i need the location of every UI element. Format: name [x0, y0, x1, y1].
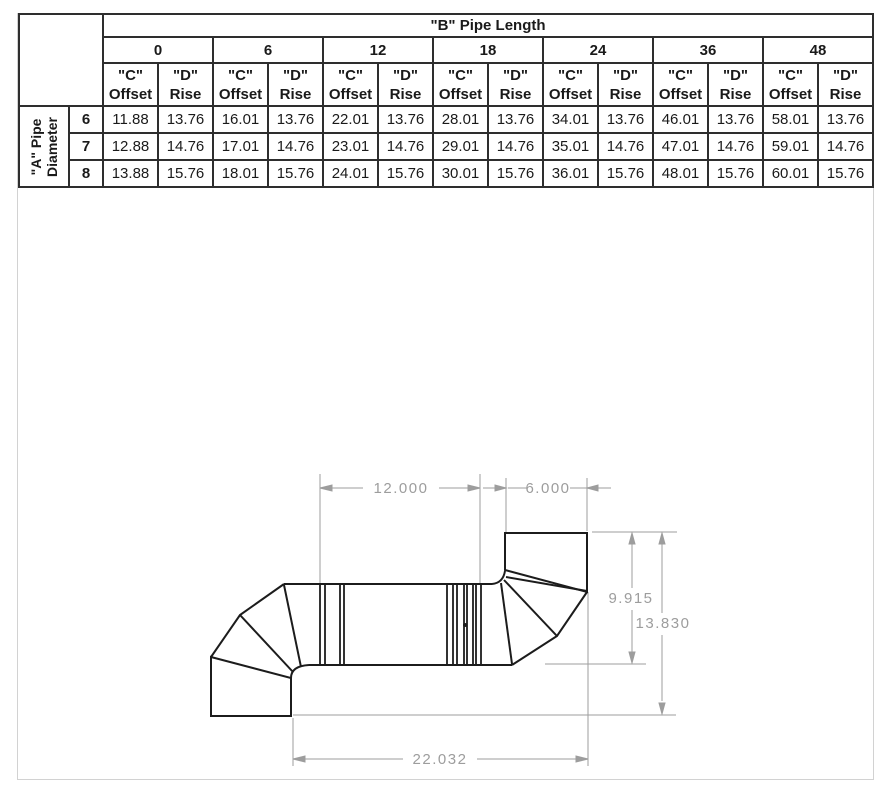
c-header-line1: "C"	[324, 66, 377, 85]
c-offset-value: 22.01	[323, 106, 378, 133]
d-rise-header: "D"Rise	[818, 63, 873, 106]
left-elbow-inlet-collar	[211, 657, 291, 716]
right-elbow	[492, 533, 587, 665]
c-offset-value: 34.01	[543, 106, 598, 133]
c-offset-value: 58.01	[763, 106, 818, 133]
c-offset-value: 46.01	[653, 106, 708, 133]
d-rise-value: 14.76	[378, 133, 433, 160]
d-rise-header: "D"Rise	[268, 63, 323, 106]
c-header-line2: Offset	[214, 85, 267, 104]
table-row: 813.8815.7618.0115.7624.0115.7630.0115.7…	[19, 160, 873, 187]
c-header-line1: "C"	[434, 66, 487, 85]
d-rise-value: 15.76	[488, 160, 543, 187]
a-pipe-diameter-label-cell: "A" Pipe Diameter	[19, 106, 69, 187]
d-rise-value: 13.76	[268, 106, 323, 133]
d-rise-value: 13.76	[158, 106, 213, 133]
dim-text-6000: 6.000	[525, 480, 570, 497]
c-offset-value: 59.01	[763, 133, 818, 160]
c-offset-value: 48.01	[653, 160, 708, 187]
c-offset-value: 36.01	[543, 160, 598, 187]
c-offset-value: 35.01	[543, 133, 598, 160]
c-offset-header: "C"Offset	[323, 63, 378, 106]
d-rise-value: 14.76	[268, 133, 323, 160]
pipe-length-header: 48	[763, 37, 873, 63]
dim-text-13830: 13.830	[636, 615, 691, 632]
d-rise-value: 13.76	[378, 106, 433, 133]
d-rise-value: 15.76	[158, 160, 213, 187]
c-header-line1: "C"	[104, 66, 157, 85]
c-header-line1: "C"	[544, 66, 597, 85]
d-rise-value: 15.76	[268, 160, 323, 187]
d-header-line2: Rise	[819, 85, 872, 104]
c-offset-header: "C"Offset	[433, 63, 488, 106]
d-rise-value: 13.76	[708, 106, 763, 133]
c-offset-value: 23.01	[323, 133, 378, 160]
diameter-cell: 8	[69, 160, 103, 187]
dim-text-12000: 12.000	[374, 480, 429, 497]
c-offset-value: 60.01	[763, 160, 818, 187]
c-offset-value: 47.01	[653, 133, 708, 160]
pipe-length-header: 6	[213, 37, 323, 63]
d-rise-value: 14.76	[158, 133, 213, 160]
pipe-length-header: 24	[543, 37, 653, 63]
pipe-rivet-dot	[463, 623, 467, 627]
c-header-line2: Offset	[324, 85, 377, 104]
d-rise-header: "D"Rise	[708, 63, 763, 106]
pipe-lengths-row: 061218243648	[19, 37, 873, 63]
pipe-length-header: 36	[653, 37, 763, 63]
dimension-lines: 12.000 6.000 9.915 13.830 22.032	[293, 474, 690, 768]
right-elbow-throat-arc	[492, 571, 505, 584]
c-offset-header: "C"Offset	[543, 63, 598, 106]
c-offset-header: "C"Offset	[653, 63, 708, 106]
pipe-seam-lines	[320, 584, 481, 665]
column-headers-row: "C"Offset"D"Rise"C"Offset"D"Rise"C"Offse…	[19, 63, 873, 106]
a-pipe-diameter-label: "A" Pipe Diameter	[28, 106, 60, 187]
pipe-length-header: 12	[323, 37, 433, 63]
dim-text-22032: 22.032	[413, 751, 468, 768]
straight-pipe	[284, 584, 512, 665]
c-offset-value: 18.01	[213, 160, 268, 187]
d-header-line2: Rise	[269, 85, 322, 104]
d-rise-value: 15.76	[708, 160, 763, 187]
c-header-line1: "C"	[654, 66, 707, 85]
d-header-line1: "D"	[709, 66, 762, 85]
table-row: 712.8814.7617.0114.7623.0114.7629.0114.7…	[19, 133, 873, 160]
d-rise-value: 15.76	[818, 160, 873, 187]
c-offset-value: 13.88	[103, 160, 158, 187]
pipe-length-header: 18	[433, 37, 543, 63]
b-pipe-length-header: "B" Pipe Length	[103, 14, 873, 37]
c-offset-value: 30.01	[433, 160, 488, 187]
d-rise-value: 13.76	[598, 106, 653, 133]
c-offset-value: 28.01	[433, 106, 488, 133]
c-header-line2: Offset	[104, 85, 157, 104]
c-header-line2: Offset	[434, 85, 487, 104]
d-header-line1: "D"	[599, 66, 652, 85]
c-offset-value: 12.88	[103, 133, 158, 160]
c-offset-header: "C"Offset	[103, 63, 158, 106]
c-offset-value: 17.01	[213, 133, 268, 160]
d-header-line2: Rise	[489, 85, 542, 104]
left-elbow-gore-seam-1	[240, 615, 293, 672]
c-offset-value: 29.01	[433, 133, 488, 160]
d-header-line1: "D"	[819, 66, 872, 85]
d-header-line2: Rise	[379, 85, 432, 104]
c-header-line1: "C"	[214, 66, 267, 85]
diameter-cell: 6	[69, 106, 103, 133]
d-rise-value: 14.76	[708, 133, 763, 160]
c-header-line2: Offset	[764, 85, 817, 104]
c-offset-value: 11.88	[103, 106, 158, 133]
d-rise-value: 15.76	[598, 160, 653, 187]
right-elbow-gore-seam-2	[504, 580, 557, 636]
left-elbow-outer-edge	[211, 584, 284, 657]
a-pipe-label-line1: "A" Pipe	[28, 106, 44, 187]
d-rise-value: 14.76	[488, 133, 543, 160]
right-elbow-gore-seam-3	[501, 583, 512, 664]
d-header-line2: Rise	[159, 85, 212, 104]
d-rise-header: "D"Rise	[158, 63, 213, 106]
a-pipe-label-line2: Diameter	[44, 106, 60, 187]
table-row: "A" Pipe Diameter 611.8813.7616.0113.762…	[19, 106, 873, 133]
c-header-line2: Offset	[654, 85, 707, 104]
c-offset-value: 24.01	[323, 160, 378, 187]
left-elbow-gore-seam-2	[284, 585, 301, 667]
d-header-line2: Rise	[599, 85, 652, 104]
dim-text-9915: 9.915	[608, 590, 653, 607]
d-header-line1: "D"	[379, 66, 432, 85]
c-offset-value: 16.01	[213, 106, 268, 133]
d-rise-value: 13.76	[818, 106, 873, 133]
d-rise-value: 14.76	[818, 133, 873, 160]
pipe-length-table: "B" Pipe Length 061218243648 "C"Offset"D…	[18, 13, 874, 188]
c-offset-header: "C"Offset	[213, 63, 268, 106]
d-rise-value: 13.76	[488, 106, 543, 133]
d-header-line1: "D"	[159, 66, 212, 85]
pipe-length-header: 0	[103, 37, 213, 63]
table-title-row: "B" Pipe Length	[19, 14, 873, 37]
d-rise-header: "D"Rise	[488, 63, 543, 106]
left-elbow	[211, 584, 309, 716]
d-rise-header: "D"Rise	[598, 63, 653, 106]
d-rise-value: 15.76	[378, 160, 433, 187]
pipe-offset-spec-sheet: 12.000 6.000 9.915 13.830 22.032	[0, 0, 890, 790]
pipe-assembly	[211, 533, 587, 716]
d-rise-header: "D"Rise	[378, 63, 433, 106]
c-offset-header: "C"Offset	[763, 63, 818, 106]
d-rise-value: 14.76	[598, 133, 653, 160]
c-header-line2: Offset	[544, 85, 597, 104]
corner-cell	[19, 14, 103, 106]
d-header-line2: Rise	[709, 85, 762, 104]
d-header-line1: "D"	[269, 66, 322, 85]
diameter-cell: 7	[69, 133, 103, 160]
d-header-line1: "D"	[489, 66, 542, 85]
c-header-line1: "C"	[764, 66, 817, 85]
